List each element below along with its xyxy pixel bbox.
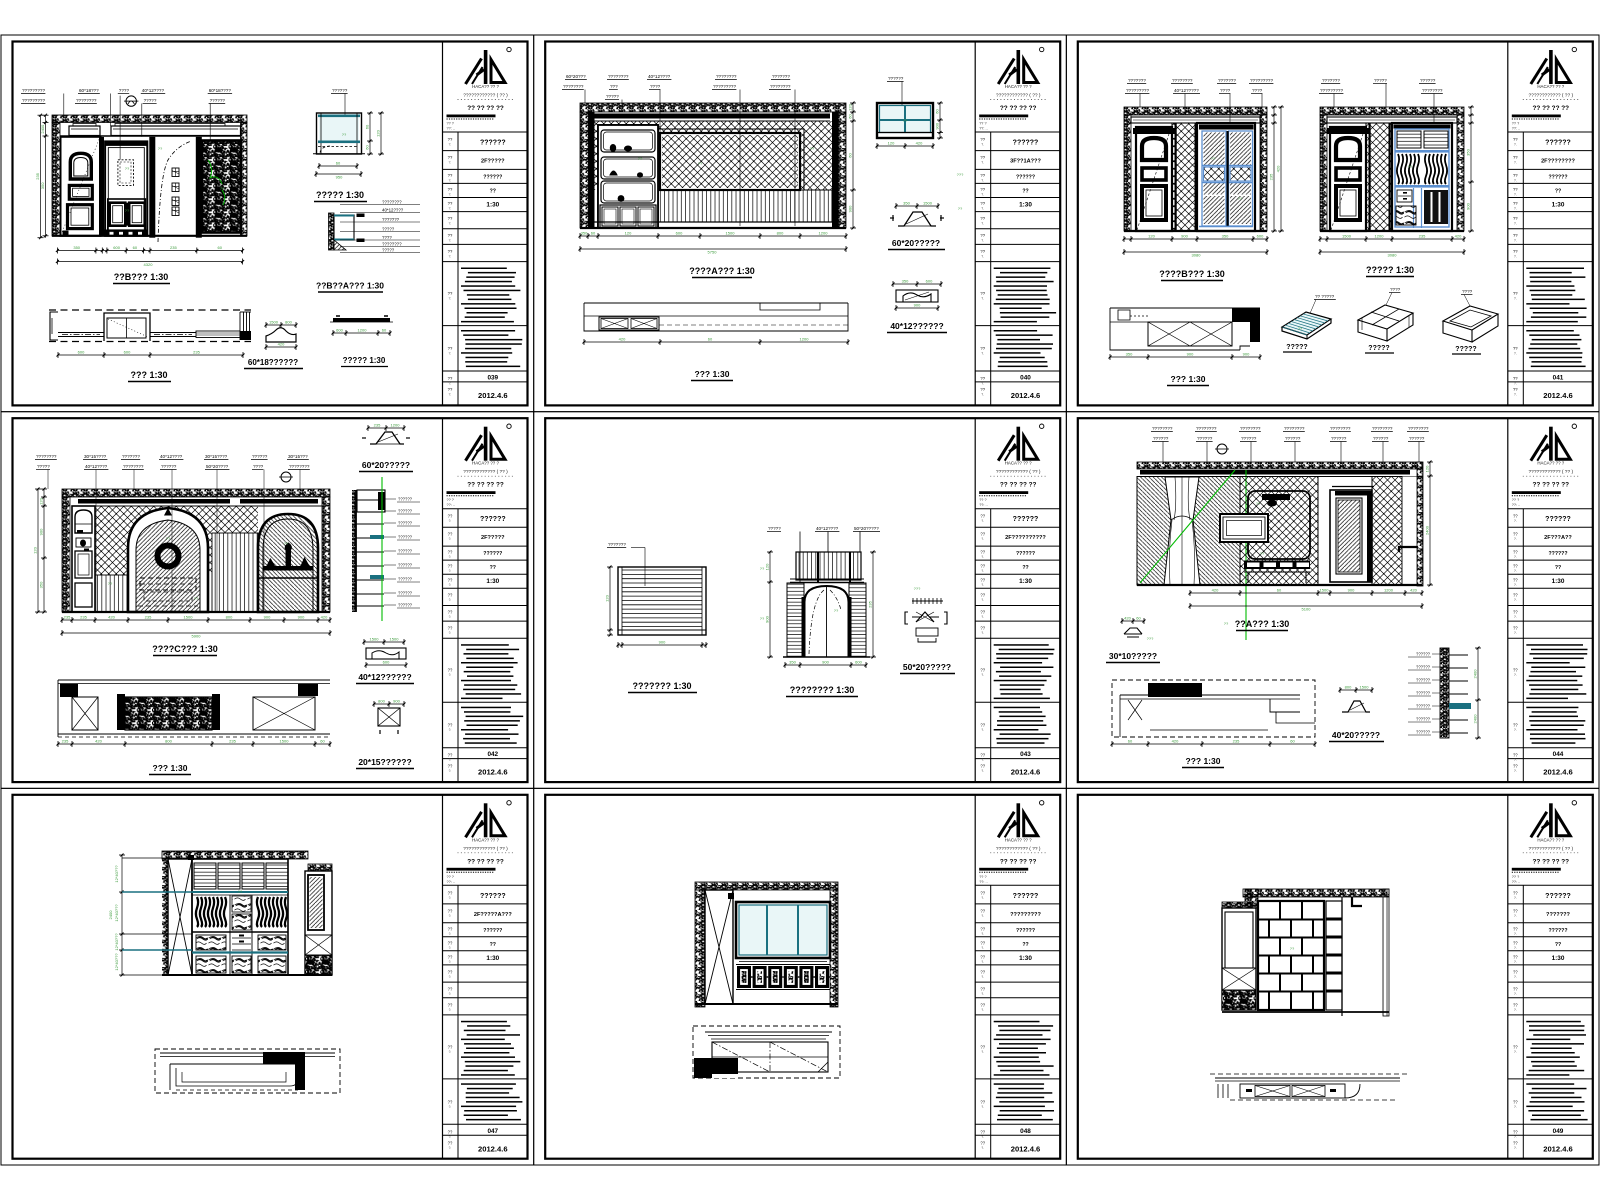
svg-text:?.: ?. xyxy=(449,758,452,762)
svg-text:1500: 1500 xyxy=(1320,588,1330,593)
svg-text:?? ?: ?? ? xyxy=(979,122,986,126)
svg-text:?.: ?. xyxy=(449,728,452,732)
svg-text:50*20?????: 50*20????? xyxy=(854,526,879,531)
svg-text:1200: 1200 xyxy=(358,328,368,333)
svg-text:?.: ?. xyxy=(981,946,984,950)
svg-text:??????: ?????? xyxy=(1013,140,1039,147)
svg-text:??: ..: ??: .. xyxy=(979,880,987,884)
svg-text:?.: ?. xyxy=(1514,352,1517,356)
svg-text:5100: 5100 xyxy=(1302,607,1312,612)
svg-text:?.: ?. xyxy=(1514,960,1517,964)
svg-text:????????: ???????? xyxy=(382,241,402,246)
svg-text:600: 600 xyxy=(383,660,390,665)
svg-text:?? ?? ?? ??: ?? ?? ?? ?? xyxy=(1533,858,1570,865)
svg-text:??????: ?????? xyxy=(161,464,177,469)
svg-text:??: ?? xyxy=(1513,926,1518,931)
svg-text:??: ?? xyxy=(1513,908,1518,913)
svg-text:?.: ?. xyxy=(981,631,984,635)
svg-text:420: 420 xyxy=(321,615,328,620)
svg-text:??????: ?????? xyxy=(1416,652,1431,657)
svg-text:?.: ?. xyxy=(1514,1135,1517,1139)
svg-text:800: 800 xyxy=(1345,685,1352,690)
svg-text:900: 900 xyxy=(848,205,853,212)
svg-text:420: 420 xyxy=(1212,588,1219,593)
svg-text:30*15???: 30*15??? xyxy=(288,454,308,459)
svg-text:??: ?? xyxy=(1513,173,1518,178)
svg-text:?.: ?. xyxy=(981,222,984,226)
svg-text:??: ?? xyxy=(1408,164,1413,169)
svg-text:3080: 3080 xyxy=(1388,253,1398,258)
svg-text:HACA?? ?? ?: HACA?? ?? ? xyxy=(472,837,499,842)
svg-text:?? ?: ?? ? xyxy=(447,875,454,879)
svg-text:??: ?? xyxy=(958,206,963,211)
svg-text:HACA?? ?? ?: HACA?? ?? ? xyxy=(1005,84,1032,89)
svg-text:120: 120 xyxy=(376,129,381,136)
svg-text:40*12????: 40*12???? xyxy=(382,207,404,212)
svg-text:?.: ?. xyxy=(981,393,984,397)
svg-text:043: 043 xyxy=(1020,751,1031,758)
svg-text:??: ?? xyxy=(1513,890,1518,895)
svg-text:?????????: ????????? xyxy=(1320,88,1343,93)
svg-text:??: ?? xyxy=(1513,1099,1518,1104)
svg-text:??: ?? xyxy=(448,940,453,945)
svg-text:?.: ?. xyxy=(981,758,984,762)
svg-text:???: ??? xyxy=(610,84,618,89)
svg-text:??: ?? xyxy=(448,514,453,519)
svg-text:?.: ?. xyxy=(449,914,452,918)
svg-text:?.: ?. xyxy=(449,1105,452,1109)
svg-text:??: ?? xyxy=(448,187,453,192)
svg-text:??: ?? xyxy=(1513,764,1518,769)
svg-text:??: ..: ??: .. xyxy=(447,127,455,131)
svg-text:HACA?? ?? ?: HACA?? ?? ? xyxy=(472,84,499,89)
svg-text:?.: ?. xyxy=(1514,1008,1517,1012)
svg-text:350: 350 xyxy=(39,581,44,588)
svg-text:040: 040 xyxy=(1020,375,1031,382)
svg-text:?.: ?. xyxy=(1514,1050,1517,1054)
svg-text:??: ?? xyxy=(1224,621,1229,626)
svg-text:?.: ?. xyxy=(981,1050,984,1054)
svg-text:60: 60 xyxy=(133,245,138,250)
svg-text:1500: 1500 xyxy=(184,615,194,620)
svg-text:?.: ?. xyxy=(1514,393,1517,397)
svg-text:?.: ?. xyxy=(449,896,452,900)
svg-text:235: 235 xyxy=(170,245,177,250)
svg-text:?.: ?. xyxy=(449,555,452,559)
svg-text:??: ?? xyxy=(448,387,453,392)
svg-text:??: ?? xyxy=(448,155,453,160)
svg-text:600: 600 xyxy=(1257,234,1264,239)
svg-text:??: ?? xyxy=(448,908,453,913)
svg-text:420: 420 xyxy=(619,337,626,342)
svg-text:??????: ?????? xyxy=(1016,928,1035,934)
svg-text:235: 235 xyxy=(62,739,69,744)
svg-text:900: 900 xyxy=(393,699,400,704)
svg-text:??: ?? xyxy=(1513,1140,1518,1145)
svg-text:?.: ?. xyxy=(449,960,452,964)
svg-text:????? 1:30: ????? 1:30 xyxy=(1366,265,1414,275)
svg-text:?????: ????? xyxy=(1286,344,1307,351)
svg-text:???: ??? xyxy=(957,172,964,177)
svg-text:??: ?? xyxy=(980,532,985,537)
svg-text:350: 350 xyxy=(1126,352,1133,357)
svg-text:?.: ?. xyxy=(449,992,452,996)
svg-text:??????: ?????? xyxy=(1409,436,1425,441)
svg-text:?.: ?. xyxy=(1514,583,1517,587)
svg-text:120: 120 xyxy=(33,546,38,553)
svg-text:?.: ?. xyxy=(1514,932,1517,936)
svg-text:047: 047 xyxy=(487,1128,498,1135)
svg-text:????: ???? xyxy=(1252,88,1263,93)
svg-text:?.: ?. xyxy=(981,555,984,559)
svg-text:??????: ?????? xyxy=(1285,436,1301,441)
svg-text:?????: ????? xyxy=(382,226,395,231)
svg-text:?????: ????? xyxy=(606,94,619,99)
svg-text:2400: 2400 xyxy=(1473,714,1478,724)
svg-text:?.: ?. xyxy=(449,537,452,541)
svg-text:?.: ?. xyxy=(1514,193,1517,197)
svg-text:?.: ?. xyxy=(981,239,984,243)
svg-text:40*12????: 40*12???? xyxy=(816,526,839,531)
svg-text:??????: ?????? xyxy=(480,516,506,523)
svg-text:048: 048 xyxy=(1020,1128,1031,1135)
svg-text:12*40???: 12*40??? xyxy=(114,865,119,883)
svg-text:?.: ?. xyxy=(449,673,452,677)
svg-text:235: 235 xyxy=(64,615,71,620)
svg-text:????C??? 1:30: ????C??? 1:30 xyxy=(152,644,218,654)
svg-text:??: ?? xyxy=(448,376,453,381)
svg-text:?? ?? ?? ??: ?? ?? ?? ?? xyxy=(1533,482,1570,489)
svg-text:2F?????A???: 2F?????A??? xyxy=(474,912,512,918)
svg-text:??: ?? xyxy=(1513,514,1518,519)
svg-text:??: ?? xyxy=(448,346,453,351)
svg-text:600: 600 xyxy=(78,350,85,355)
svg-text:?? ?? ?? ??: ?? ?? ?? ?? xyxy=(467,858,504,865)
svg-text:????????: ???????? xyxy=(76,98,97,103)
svg-text:2400: 2400 xyxy=(108,910,113,920)
svg-text:1:30: 1:30 xyxy=(1019,578,1032,585)
svg-text:?.: ?. xyxy=(981,1135,984,1139)
svg-text:???????????? ( ?? ): ???????????? ( ?? ) xyxy=(996,93,1041,99)
svg-text:600: 600 xyxy=(113,245,120,250)
svg-text:??????: ?????? xyxy=(1373,436,1389,441)
svg-text:??: ?? xyxy=(980,986,985,991)
svg-text:?.: ?. xyxy=(449,1135,452,1139)
svg-text:??: ?? xyxy=(1513,1129,1518,1134)
svg-text:1200: 1200 xyxy=(1384,588,1394,593)
svg-text:??? 1:30: ??? 1:30 xyxy=(153,763,188,773)
svg-text:?? ?? ?? ??: ?? ?? ?? ?? xyxy=(1000,858,1037,865)
svg-text:?.: ?. xyxy=(449,769,452,773)
svg-text:?.: ?. xyxy=(1514,179,1517,183)
svg-text:??: ?? xyxy=(980,1044,985,1049)
svg-text:??: ?? xyxy=(1290,946,1295,951)
svg-text:??????: ?????? xyxy=(1416,717,1431,722)
svg-text:?.: ?. xyxy=(449,207,452,211)
svg-text:??: ?? xyxy=(980,926,985,931)
svg-text:??: ?? xyxy=(980,969,985,974)
svg-text:235: 235 xyxy=(1269,173,1274,180)
svg-text:??????: ?????? xyxy=(398,535,413,540)
svg-text:?? ?: ?? ? xyxy=(447,498,454,502)
svg-text:??: ?? xyxy=(448,1129,453,1134)
svg-text:??: ?? xyxy=(1022,942,1028,948)
svg-text:?.: ?. xyxy=(449,179,452,183)
svg-text:1:30: 1:30 xyxy=(486,955,499,962)
svg-text:?.: ?. xyxy=(1514,239,1517,243)
svg-text:60: 60 xyxy=(217,245,222,250)
svg-text:??: ?? xyxy=(980,1140,985,1145)
svg-text:2012.4.6: 2012.4.6 xyxy=(1543,1144,1573,1153)
svg-text:235: 235 xyxy=(1233,739,1240,744)
svg-text:???: ??? xyxy=(914,586,921,591)
svg-text:?? ?? ?? ??: ?? ?? ?? ?? xyxy=(1000,482,1037,489)
svg-text:120: 120 xyxy=(625,231,632,236)
svg-text:?.: ?. xyxy=(1514,992,1517,996)
svg-text:??: ?? xyxy=(1298,326,1303,331)
svg-text:2400: 2400 xyxy=(1425,525,1430,535)
svg-text:1500: 1500 xyxy=(726,231,736,236)
svg-text:??????: ?????? xyxy=(888,76,904,81)
svg-text:?????????: ????????? xyxy=(22,98,45,103)
svg-text:??: ?? xyxy=(1513,249,1518,254)
svg-text:?.: ?. xyxy=(449,946,452,950)
svg-text:??: ?? xyxy=(448,249,453,254)
svg-text:??: ?? xyxy=(1513,532,1518,537)
svg-text:235: 235 xyxy=(193,350,200,355)
svg-text:??: ?? xyxy=(166,536,171,541)
svg-text:??: ?? xyxy=(448,216,453,221)
svg-text:?????: ????? xyxy=(1374,78,1387,83)
svg-text:?.: ?. xyxy=(449,239,452,243)
svg-text:??: ?? xyxy=(980,668,985,673)
svg-text:2012.4.6: 2012.4.6 xyxy=(1011,391,1041,400)
svg-text:??????: ?????? xyxy=(398,603,413,608)
svg-text:20*15??????: 20*15?????? xyxy=(358,757,411,767)
svg-text:??: ?? xyxy=(448,890,453,895)
svg-text:800: 800 xyxy=(226,615,233,620)
svg-text:???????: ??????? xyxy=(1128,78,1146,83)
svg-text:?.: ?. xyxy=(981,1008,984,1012)
svg-text:2F????????: 2F???????? xyxy=(1541,159,1575,165)
svg-text:?? ?????: ?? ????? xyxy=(1315,294,1335,299)
svg-text:?.: ?. xyxy=(981,537,984,541)
svg-text:??: ?? xyxy=(1513,137,1518,142)
svg-text:???????????? ( ?? ): ???????????? ( ?? ) xyxy=(463,93,508,99)
svg-text:?.: ?. xyxy=(449,1146,452,1150)
svg-text:?????????: ????????? xyxy=(1010,912,1041,918)
svg-text:2F?????: 2F????? xyxy=(481,159,505,165)
svg-text:5750: 5750 xyxy=(708,250,718,255)
svg-text:??: ?? xyxy=(980,187,985,192)
svg-text:?????: ????? xyxy=(768,526,781,531)
svg-text:??: ?? xyxy=(158,146,163,151)
svg-text:?.: ?. xyxy=(1514,537,1517,541)
svg-text:?.: ?. xyxy=(1514,615,1517,619)
svg-text:?.: ?. xyxy=(981,583,984,587)
svg-text:HACA?? ?? ?: HACA?? ?? ? xyxy=(1537,461,1564,466)
svg-text:?.: ?. xyxy=(449,975,452,979)
svg-text:????B??? 1:30: ????B??? 1:30 xyxy=(1159,269,1225,279)
svg-text:??: ?? xyxy=(1513,940,1518,945)
svg-text:????????: ???????? xyxy=(563,84,584,89)
svg-text:??????: ?????? xyxy=(210,98,226,103)
svg-text:420: 420 xyxy=(916,141,923,146)
svg-text:??: ?? xyxy=(448,137,453,142)
svg-text:1:30: 1:30 xyxy=(486,578,499,585)
svg-text:?.: ?. xyxy=(981,569,984,573)
svg-text:120: 120 xyxy=(765,563,770,570)
svg-text:????: ???? xyxy=(1220,88,1231,93)
svg-text:?? ?: ?? ? xyxy=(979,498,986,502)
svg-text:40*12?????: 40*12????? xyxy=(1174,88,1199,93)
svg-text:??: ?? xyxy=(1555,565,1561,571)
svg-text:900: 900 xyxy=(935,122,940,129)
svg-text:40*20?????: 40*20????? xyxy=(1332,730,1380,740)
svg-text:1500: 1500 xyxy=(1360,685,1370,690)
svg-text:??: ?? xyxy=(980,291,985,296)
svg-text:??: ?? xyxy=(980,346,985,351)
svg-text:??: ?? xyxy=(125,166,130,171)
svg-text:12*40???: 12*40??? xyxy=(114,933,119,951)
svg-text:?.: ?. xyxy=(981,1105,984,1109)
svg-text:?? ?? ?? ??: ?? ?? ?? ?? xyxy=(1533,105,1570,112)
svg-text:??: ?? xyxy=(1256,501,1261,506)
svg-text:??: ?? xyxy=(810,146,815,151)
svg-text:??: ?? xyxy=(980,550,985,555)
svg-text:2400: 2400 xyxy=(1473,669,1478,679)
svg-text:??: ?? xyxy=(1513,376,1518,381)
svg-text:??: ?? xyxy=(125,208,130,213)
svg-text:235: 235 xyxy=(868,600,873,607)
svg-text:042: 042 xyxy=(487,751,498,758)
svg-text:???????????? ( ?? ): ???????????? ( ?? ) xyxy=(463,469,508,475)
svg-text:??: ?? xyxy=(980,890,985,895)
svg-text:??????: ?????? xyxy=(1416,730,1431,735)
svg-text:??? 1:30: ??? 1:30 xyxy=(130,370,167,380)
svg-text:???????: ??????? xyxy=(382,217,400,222)
svg-text:??: ?? xyxy=(448,1044,453,1049)
svg-text:?? ?? ?? ??: ?? ?? ?? ?? xyxy=(1000,105,1037,112)
svg-text:420: 420 xyxy=(1124,616,1131,621)
svg-text:??????: ?????? xyxy=(1548,551,1567,557)
svg-text:900: 900 xyxy=(1466,202,1471,209)
svg-text:??: ?? xyxy=(1513,346,1518,351)
svg-text:?.: ?. xyxy=(449,143,452,147)
svg-text:235: 235 xyxy=(80,615,87,620)
svg-text:60*20?????: 60*20????? xyxy=(892,238,940,248)
svg-text:??: ?? xyxy=(448,926,453,931)
svg-text:??: ?? xyxy=(1513,564,1518,569)
svg-text:60: 60 xyxy=(591,231,596,236)
svg-text:??: ?? xyxy=(1513,201,1518,206)
svg-text:?????????: ????????? xyxy=(22,88,45,93)
svg-text:??: ?? xyxy=(1513,626,1518,631)
svg-text:?.: ?. xyxy=(449,1050,452,1054)
svg-text:?.: ?. xyxy=(981,179,984,183)
svg-text:50*20????: 50*20???? xyxy=(206,464,229,469)
svg-text:60: 60 xyxy=(382,328,387,333)
svg-text:350: 350 xyxy=(1222,234,1229,239)
svg-text:??: ?? xyxy=(448,723,453,728)
svg-text:60: 60 xyxy=(336,161,341,166)
svg-text:60: 60 xyxy=(935,109,940,114)
svg-text:?.: ?. xyxy=(449,569,452,573)
svg-text:????A??? 1:30: ????A??? 1:30 xyxy=(689,266,755,276)
svg-text:??: ?? xyxy=(1513,969,1518,974)
svg-text:??????: ?????? xyxy=(398,509,413,514)
svg-text:??: ?? xyxy=(980,578,985,583)
svg-text:???????: ??????? xyxy=(1322,78,1340,83)
svg-text:?.: ?. xyxy=(981,193,984,197)
svg-text:HACA?? ?? ?: HACA?? ?? ? xyxy=(1005,837,1032,842)
svg-text:??: ?? xyxy=(448,578,453,583)
svg-text:???????????? ( ?? ): ???????????? ( ?? ) xyxy=(463,846,508,852)
svg-text:??: ?? xyxy=(448,550,453,555)
svg-text:??: ?? xyxy=(448,593,453,598)
svg-text:?.: ?. xyxy=(449,352,452,356)
svg-text:235: 235 xyxy=(1419,234,1426,239)
svg-text:900: 900 xyxy=(1187,352,1194,357)
svg-text:2F???A??: 2F???A?? xyxy=(1544,535,1572,541)
svg-text:?.: ?. xyxy=(981,615,984,619)
svg-text:??B??A??? 1:30: ??B??A??? 1:30 xyxy=(316,281,384,291)
svg-text:2F?????: 2F????? xyxy=(481,535,505,541)
svg-text:120: 120 xyxy=(848,103,853,110)
svg-text:1:30: 1:30 xyxy=(1019,202,1032,209)
svg-text:??????: ?????? xyxy=(1013,893,1039,900)
svg-text:1:30: 1:30 xyxy=(1019,955,1032,962)
svg-text:800: 800 xyxy=(378,699,385,704)
svg-text:??B??? 1:30: ??B??? 1:30 xyxy=(114,272,169,282)
svg-text:??????: ?????? xyxy=(1416,691,1431,696)
svg-text:??: ?? xyxy=(980,249,985,254)
svg-text:3080: 3080 xyxy=(1192,253,1202,258)
svg-text:??: ?? xyxy=(980,723,985,728)
svg-text:900: 900 xyxy=(39,528,44,535)
svg-text:?.: ?. xyxy=(1514,769,1517,773)
svg-text:?.: ?. xyxy=(449,222,452,226)
svg-text:1200: 1200 xyxy=(1375,234,1385,239)
svg-text:5900: 5900 xyxy=(192,634,202,639)
svg-text:??: ..: ??: .. xyxy=(447,880,455,884)
svg-text:?.: ?. xyxy=(1514,673,1517,677)
svg-text:60*18??????: 60*18?????? xyxy=(248,358,298,367)
svg-text:??: ?? xyxy=(1022,189,1028,195)
svg-text:350: 350 xyxy=(73,245,80,250)
svg-text:??: ?? xyxy=(1238,196,1243,201)
svg-text:???????: ??????? xyxy=(122,454,140,459)
svg-text:????: ???? xyxy=(119,88,130,93)
svg-text:??: ?? xyxy=(1513,233,1518,238)
svg-text:????????: ???????? xyxy=(716,74,737,79)
svg-text:?.: ?. xyxy=(981,673,984,677)
svg-text:??: ?? xyxy=(284,541,289,546)
svg-text:??????: ?????? xyxy=(252,454,268,459)
svg-text:900: 900 xyxy=(914,303,921,308)
svg-text:039: 039 xyxy=(487,375,498,382)
svg-text:?.: ?. xyxy=(981,207,984,211)
svg-text:900: 900 xyxy=(822,660,829,665)
svg-text:??????: ?????? xyxy=(483,928,502,934)
svg-text:??: ?? xyxy=(1513,610,1518,615)
svg-text:60*18????: 60*18???? xyxy=(209,88,232,93)
svg-text:900: 900 xyxy=(1181,234,1188,239)
svg-text:049: 049 xyxy=(1553,1128,1564,1135)
svg-text:?????: ????? xyxy=(382,247,395,252)
svg-text:420: 420 xyxy=(1410,588,1417,593)
svg-text:??: ?? xyxy=(980,137,985,142)
